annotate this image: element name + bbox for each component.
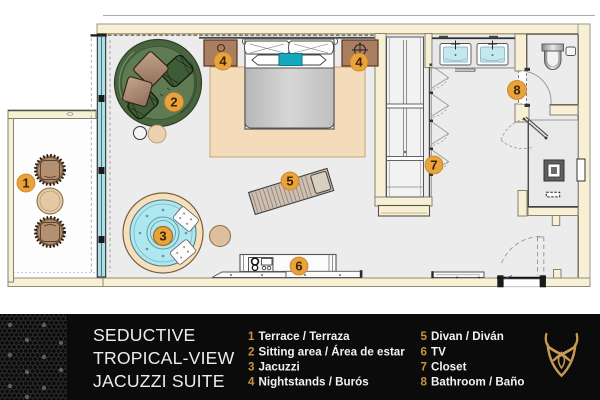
svg-text:Nightstands / Burós: Nightstands / Burós [259, 376, 369, 389]
svg-text:1: 1 [248, 330, 255, 343]
svg-text:6: 6 [421, 346, 428, 359]
svg-text:Jacuzzi: Jacuzzi [259, 361, 300, 374]
svg-text:TV: TV [431, 346, 446, 359]
svg-text:8: 8 [513, 83, 520, 98]
svg-text:Sitting area / Área de estar: Sitting area / Área de estar [259, 346, 406, 359]
svg-text:Terrace / Terraza: Terrace / Terraza [259, 330, 351, 343]
svg-text:4: 4 [219, 54, 227, 69]
svg-text:7: 7 [421, 361, 427, 374]
svg-text:7: 7 [430, 158, 437, 173]
svg-text:2: 2 [248, 346, 254, 359]
svg-text:3: 3 [159, 229, 166, 244]
svg-text:5: 5 [286, 174, 293, 189]
svg-text:Bathroom / Baño: Bathroom / Baño [431, 376, 524, 389]
svg-text:4: 4 [355, 55, 363, 70]
svg-text:5: 5 [421, 330, 428, 343]
svg-text:JACUZZI SUITE: JACUZZI SUITE [93, 371, 225, 391]
svg-text:2: 2 [170, 95, 177, 110]
svg-text:Divan / Diván: Divan / Diván [431, 330, 504, 343]
svg-text:TROPICAL-VIEW: TROPICAL-VIEW [93, 348, 235, 368]
svg-text:3: 3 [248, 361, 255, 374]
svg-text:1: 1 [22, 176, 29, 191]
svg-text:Closet: Closet [431, 361, 467, 374]
svg-text:4: 4 [248, 376, 255, 389]
svg-text:SEDUCTIVE: SEDUCTIVE [93, 325, 196, 345]
svg-text:8: 8 [421, 376, 428, 389]
svg-text:6: 6 [295, 259, 302, 274]
